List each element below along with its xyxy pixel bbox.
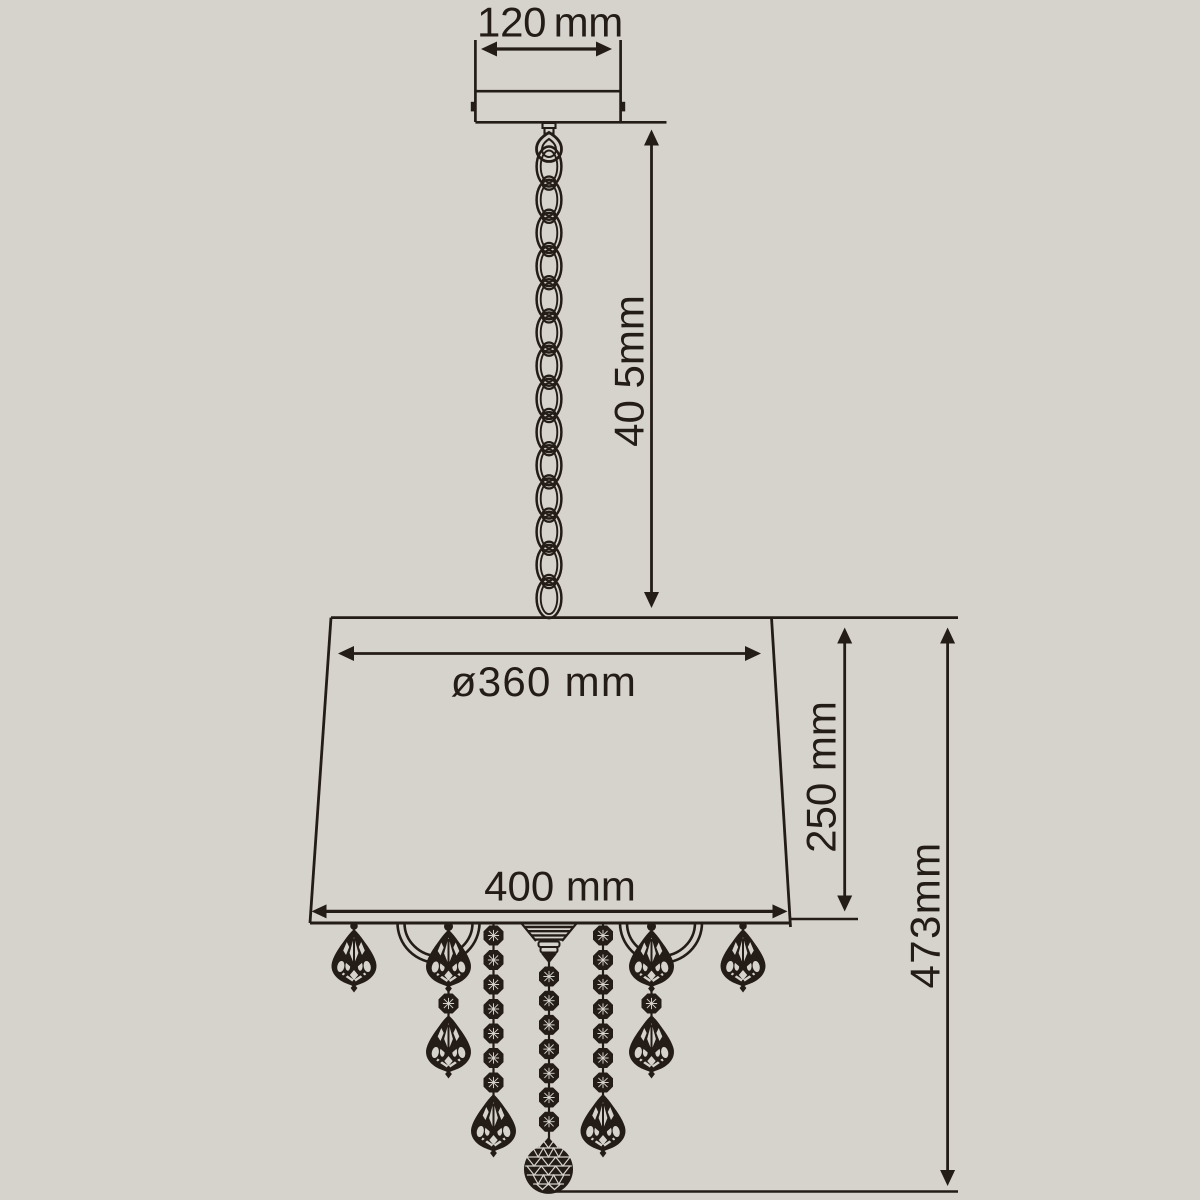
svg-text:ø360 mm: ø360 mm (451, 658, 637, 705)
svg-text:250 mm: 250 mm (798, 701, 845, 853)
svg-text:120 mm: 120 mm (477, 0, 623, 46)
svg-text:40 5mm: 40 5mm (606, 295, 653, 447)
svg-text:400 mm: 400 mm (484, 863, 636, 910)
svg-text:473mm: 473mm (902, 841, 949, 988)
